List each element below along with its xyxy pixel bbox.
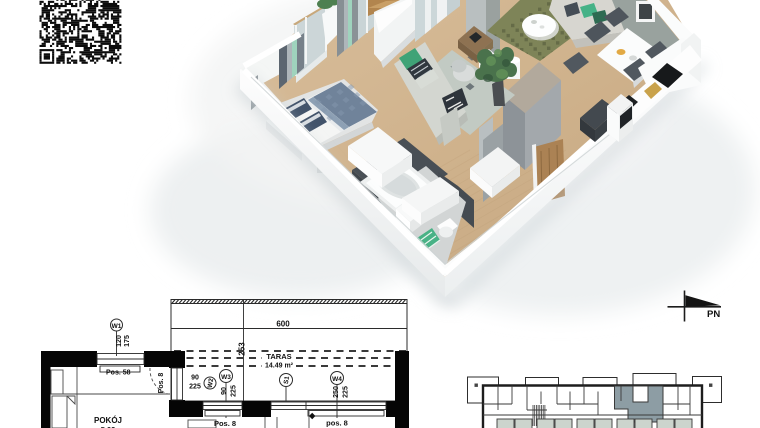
svg-text:253: 253 bbox=[238, 342, 247, 356]
svg-text:pos. 8: pos. 8 bbox=[326, 419, 348, 428]
svg-text:TARAS: TARAS bbox=[266, 352, 291, 361]
svg-text:Pos. 8: Pos. 8 bbox=[158, 373, 165, 394]
svg-text:PN: PN bbox=[707, 309, 720, 320]
svg-text:POKÓJ: POKÓJ bbox=[94, 416, 122, 425]
svg-text:Pos. 58: Pos. 58 bbox=[106, 370, 131, 377]
svg-text:90: 90 bbox=[221, 387, 228, 395]
svg-text:Pos. 8: Pos. 8 bbox=[214, 419, 236, 428]
svg-text:225: 225 bbox=[231, 385, 238, 397]
svg-text:175: 175 bbox=[124, 335, 131, 347]
svg-text:W1: W1 bbox=[112, 323, 122, 330]
svg-text:225: 225 bbox=[189, 384, 201, 391]
svg-text:W4: W4 bbox=[332, 376, 342, 383]
svg-text:W3: W3 bbox=[221, 374, 231, 381]
svg-text:S1: S1 bbox=[283, 375, 291, 384]
svg-text:90: 90 bbox=[191, 375, 199, 382]
svg-text:600: 600 bbox=[276, 320, 290, 329]
svg-text:120: 120 bbox=[116, 335, 123, 347]
svg-text:14.49 m²: 14.49 m² bbox=[265, 363, 294, 370]
svg-text:225: 225 bbox=[343, 386, 350, 398]
svg-text:250: 250 bbox=[333, 386, 340, 398]
